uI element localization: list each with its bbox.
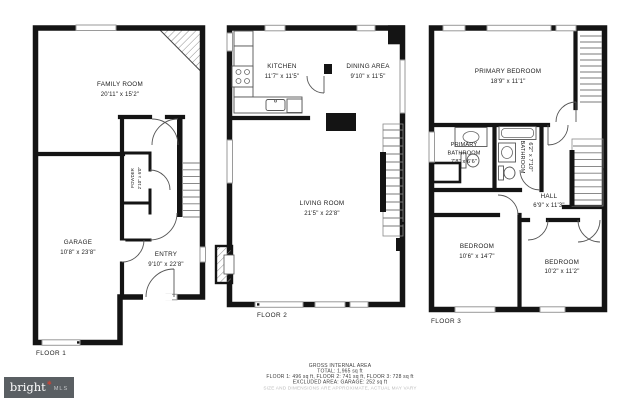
window [315,302,345,308]
hall-door [150,213,177,240]
disclaimer-note: SIZE AND DIMENSIONS ARE APPROXIMATE, ACT… [263,386,417,391]
floor1-stair-wall [177,115,183,217]
closet-doors [152,119,178,145]
bedroom2-door [528,220,548,240]
room-label-powder: POWDER [130,168,135,188]
powder-door [150,170,170,190]
room-label-kitchen: KITCHEN [267,63,297,70]
toilet-tank-2 [499,166,504,180]
floor3-plan: PRIMARY BEDROOM 18'9" x 11'1" PRIMARY BA… [429,25,605,325]
understair-closet-doors [578,220,600,242]
door-gap [119,241,125,262]
garage-door [42,340,80,346]
window [350,302,368,308]
room-label-bathroom: BATHROOM [519,140,525,173]
floor1-plan: FAMILY ROOM 20'11" x 15'2" GARAGE 10'8" … [36,25,206,357]
room-label-dining-area: DINING AREA [346,63,390,70]
room-dims-primary-bedroom: 18'9" x 11'1" [490,79,525,85]
stove [232,66,253,87]
closet-shelves [580,36,602,102]
room-dims-kitchen: 11'7" x 11'5" [265,74,300,80]
window [556,25,576,31]
floor2-label: FLOOR 2 [257,312,287,319]
floor3-stair-wall [570,150,575,206]
door-gap [143,294,172,301]
refrigerator [234,31,253,46]
floor3-stair-outline [572,139,603,206]
sink [266,100,285,111]
window [255,302,303,308]
window [265,25,285,31]
floor1-label: FLOOR 1 [36,350,66,357]
room-dims-garage: 10'8" x 23'8" [60,250,96,256]
window [400,60,405,113]
window [540,307,565,313]
room-label-living-room: LIVING ROOM [300,200,345,207]
primary-bedroom-door [548,125,568,145]
entry-front-door [146,269,174,297]
room-dims-powder: 2'10" x 6'0" [137,166,142,189]
bedroom1-door [498,195,518,215]
brightmls-logo: bright✱MLS [4,377,74,398]
room-label-bedroom-2: BEDROOM [545,259,579,266]
window [429,132,435,162]
floor1-powder-walls [122,153,150,240]
floor2-wall-post [324,64,332,74]
window [227,33,233,51]
window [443,25,465,31]
room-label-primary-bathroom-1: PRIMARY [451,142,478,148]
logo-brand-text: bright [10,382,46,394]
room-label-primary-bedroom: PRIMARY BEDROOM [475,68,542,75]
floor3-label: FLOOR 3 [431,318,461,325]
kitchen-door [307,76,324,93]
window [76,25,116,31]
floor1-stair-treads [183,163,200,217]
room-label-primary-bathroom-2: BATHROOM [447,151,480,157]
dishwasher [287,99,302,113]
floor2-wall-block [326,113,356,131]
room-label-bedroom-1: BEDROOM [460,243,494,250]
floor2-stair-wall [380,152,386,212]
room-label-family-room: FAMILY ROOM [97,81,143,88]
floorplan-drawing: FAMILY ROOM 20'11" x 15'2" GARAGE 10'8" … [0,0,640,400]
room-label-garage: GARAGE [64,239,92,246]
room-dims-entry: 9'10" x 22'8" [148,262,184,268]
room-dims-bedroom-1: 10'6" x 14'7" [459,254,495,260]
floor3-stair-treads [573,146,602,200]
room-dims-bathroom: 6'2" x 7'10" [527,142,533,171]
room-dims-living-room: 21'5" x 22'8" [304,211,340,217]
room-dims-family-room: 20'11" x 15'2" [101,92,140,98]
logo-mls-text: MLS [54,386,68,392]
window [227,140,233,183]
logo-star-icon: ✱ [47,381,52,387]
window [455,307,495,313]
toilet-bowl-2 [504,167,515,179]
room-dims-dining-area: 9'10" x 11'5" [350,74,385,80]
floor2-stair-block [396,238,403,251]
room-dims-hall: 6'9" x 11'3" [533,203,565,209]
window [200,247,206,262]
room-dims-primary-bathroom: 7'8" x 6'6" [451,159,477,165]
shower [433,163,460,182]
firebox [224,255,234,274]
window [357,25,375,31]
floor2-plan: KITCHEN 11'7" x 11'5" DINING AREA 9'10" … [216,25,405,319]
bedroom-hall-door [556,102,576,122]
room-label-entry: ENTRY [155,251,178,258]
floorplan-page: FAMILY ROOM 20'11" x 15'2" GARAGE 10'8" … [0,0,640,400]
window [487,25,551,31]
room-dims-bedroom-2: 10'2" x 11'2" [544,269,579,275]
vanity-2 [499,143,516,162]
floor1-interior-walls [36,117,184,297]
area-summary: GROSS INTERNAL AREA TOTAL: 1,965 sq ft F… [263,363,417,391]
floor2-corner-block [388,25,405,44]
room-label-hall: HALL [541,193,558,200]
